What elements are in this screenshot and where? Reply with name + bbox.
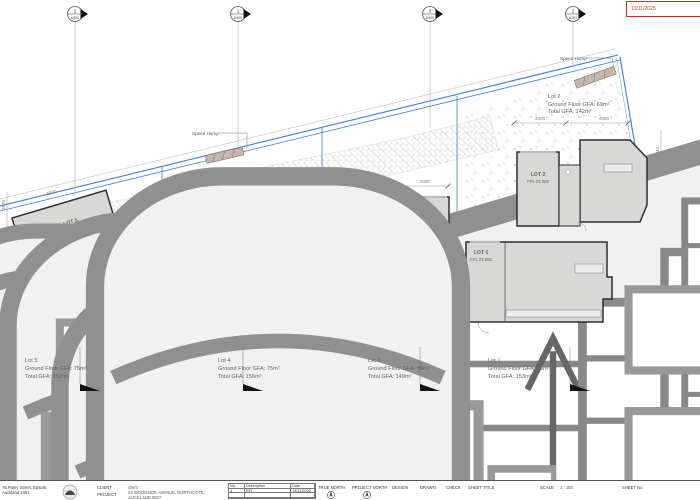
office-address: 76 Patey Street, Epsom, Auckland 1051 — [2, 485, 47, 495]
project-label: PROJECT — [97, 492, 117, 497]
svg-text:3: 3 — [429, 9, 432, 14]
svg-text:Lot 1: Lot 1 — [488, 358, 500, 364]
title-block: 76 Patey Street, Epsom, Auckland 1051 CL… — [0, 480, 700, 500]
revision-table: No. Description Date 4 RFI 13/11/2025 — [228, 483, 316, 499]
svg-text:A300: A300 — [569, 16, 577, 20]
svg-text:Ground Floor GFA: 75m²: Ground Floor GFA: 75m² — [25, 366, 87, 372]
project-value: 24 WOODSIDE AVENUE, NORTHCOTE, AUCKLAND … — [128, 490, 205, 500]
revision-date-stamp: 13/11/2025 — [626, 1, 700, 17]
scale-value: 1 : 150 — [560, 485, 573, 490]
design-label: DESIGN — [392, 485, 408, 490]
scale-label: SCALE — [540, 485, 554, 490]
svg-text:3670: 3670 — [1, 199, 6, 210]
svg-text:LOT 1: LOT 1 — [474, 250, 489, 256]
svg-text:Total GFA: 153m²: Total GFA: 153m² — [488, 374, 532, 380]
toilet-icon — [566, 170, 571, 175]
site-plan-canvas: Speed Hump Speed Hump 1410 5180 80 4460 … — [0, 0, 700, 480]
speed-hump-label-1: Speed Hump — [192, 131, 219, 136]
svg-text:5500: 5500 — [46, 189, 58, 197]
car-icon — [95, 176, 461, 480]
kitchen-counter — [604, 164, 632, 172]
svg-text:FFL 23.500: FFL 23.500 — [470, 257, 492, 262]
drawing-sheet: Speed Hump Speed Hump 1410 5180 80 4460 … — [0, 0, 700, 500]
svg-text:A300: A300 — [426, 16, 434, 20]
kitchen-counter — [506, 310, 601, 317]
project-north-icon — [362, 490, 372, 500]
svg-text:Ground Floor GFA: 70m²: Ground Floor GFA: 70m² — [368, 366, 430, 372]
kitchen-island — [575, 264, 603, 273]
svg-text:Ground Floor GFA: 75m²: Ground Floor GFA: 75m² — [218, 366, 280, 372]
svg-text:2: 2 — [74, 9, 77, 14]
check-label: CHECK — [446, 485, 461, 490]
svg-text:Total GFA: 149m²: Total GFA: 149m² — [368, 374, 412, 380]
svg-text:A300: A300 — [234, 16, 242, 20]
svg-text:Total GFA: 142m²: Total GFA: 142m² — [548, 109, 592, 115]
svg-text:1: 1 — [237, 9, 240, 14]
client-label: CLIENT — [97, 485, 112, 490]
svg-text:3380: 3380 — [420, 179, 431, 184]
svg-text:3300: 3300 — [535, 116, 546, 121]
svg-text:Ground Floor GFA: 73m²: Ground Floor GFA: 73m² — [488, 366, 550, 372]
sheet-title-label: SHEET TITLE — [468, 485, 494, 490]
svg-text:Lot 2: Lot 2 — [548, 94, 560, 100]
svg-text:Ground Floor GFA: 69m²: Ground Floor GFA: 69m² — [548, 102, 610, 108]
svg-text:Lot 5: Lot 5 — [25, 358, 37, 364]
svg-text:2: 2 — [572, 9, 575, 14]
svg-text:Lot 3: Lot 3 — [368, 358, 380, 364]
section-marker-1: 2 A300 — [68, 7, 89, 197]
svg-text:Total GFA: 152m²: Total GFA: 152m² — [25, 374, 69, 380]
true-north-icon — [326, 490, 336, 500]
svg-text:Lot 4: Lot 4 — [218, 358, 230, 364]
speed-hump-label-2: Speed Hump — [560, 56, 587, 61]
section-marker-3: 3 A300 — [423, 7, 444, 129]
sheet-no-label: SHEET No. — [622, 485, 644, 490]
drawn-label: DRAWN — [420, 485, 436, 490]
svg-text:Total GFA: 156m²: Total GFA: 156m² — [218, 374, 262, 380]
svg-text:FFL 23.000: FFL 23.000 — [527, 179, 549, 184]
section-marker-2: 1 A300 — [231, 7, 252, 151]
company-logo — [62, 484, 78, 500]
svg-text:LOT 2: LOT 2 — [531, 172, 546, 178]
svg-text:4960: 4960 — [599, 116, 610, 121]
svg-text:A300: A300 — [71, 16, 79, 20]
